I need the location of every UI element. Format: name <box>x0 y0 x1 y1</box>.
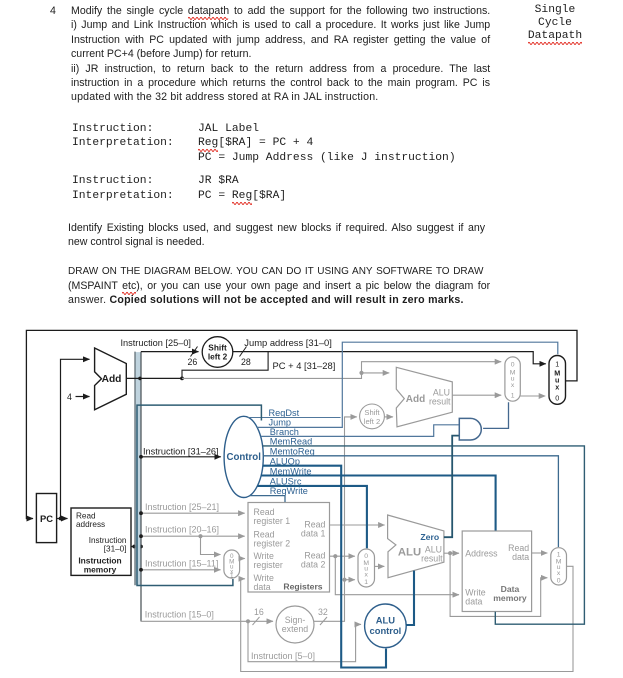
svg-text:Instruction [20–16]: Instruction [20–16] <box>145 525 219 535</box>
svg-text:Instruction [15–11]: Instruction [15–11] <box>145 559 218 569</box>
svg-text:0: 0 <box>511 362 515 369</box>
svg-text:x: x <box>557 570 561 577</box>
svg-text:4: 4 <box>67 392 72 402</box>
svg-text:0: 0 <box>555 393 559 402</box>
svg-text:1: 1 <box>364 579 368 586</box>
svg-text:left 2: left 2 <box>364 417 380 426</box>
svg-text:PC + 4 [31–28]: PC + 4 [31–28] <box>273 360 336 371</box>
svg-text:extend: extend <box>282 624 309 634</box>
svg-text:address: address <box>76 520 105 529</box>
svg-text:Address: Address <box>465 549 498 559</box>
svg-text:left 2: left 2 <box>208 352 228 362</box>
svg-text:Zero: Zero <box>420 532 439 542</box>
svg-text:Branch: Branch <box>270 427 299 437</box>
svg-text:result: result <box>429 397 451 407</box>
svg-text:register 2: register 2 <box>254 538 291 548</box>
svg-text:Instruction [25–0]: Instruction [25–0] <box>121 338 191 348</box>
svg-text:PC: PC <box>40 513 53 524</box>
svg-text:data: data <box>512 552 529 562</box>
svg-text:Instruction [31–26]: Instruction [31–26] <box>143 446 219 456</box>
svg-text:data 2: data 2 <box>301 559 326 569</box>
svg-text:28: 28 <box>241 357 251 367</box>
svg-text:Jump address [31–0]: Jump address [31–0] <box>244 337 332 348</box>
svg-text:32: 32 <box>318 607 328 617</box>
svg-text:26: 26 <box>188 357 198 367</box>
svg-text:ALU: ALU <box>398 546 421 558</box>
svg-text:1: 1 <box>511 392 515 399</box>
svg-text:Control: Control <box>226 452 260 463</box>
svg-text:data 1: data 1 <box>301 528 326 538</box>
svg-text:[31–0]: [31–0] <box>104 544 127 553</box>
svg-text:x: x <box>511 382 515 389</box>
svg-text:data: data <box>465 596 482 606</box>
svg-text:RegDst: RegDst <box>269 408 300 418</box>
svg-text:1: 1 <box>230 573 234 580</box>
svg-text:Add: Add <box>406 394 425 405</box>
svg-text:0: 0 <box>557 578 561 585</box>
svg-text:Instruction [25–21]: Instruction [25–21] <box>145 502 219 512</box>
svg-text:Jump: Jump <box>269 418 291 428</box>
svg-text:x: x <box>555 382 559 391</box>
svg-text:x: x <box>364 571 368 578</box>
svg-text:memory: memory <box>84 564 117 574</box>
svg-text:MemtoReg: MemtoReg <box>270 447 315 457</box>
svg-text:Add: Add <box>102 374 122 385</box>
svg-text:1: 1 <box>555 359 559 368</box>
svg-text:result: result <box>421 553 443 563</box>
svg-text:control: control <box>370 625 402 636</box>
svg-text:data: data <box>254 582 271 592</box>
svg-text:16: 16 <box>254 607 264 617</box>
svg-text:register: register <box>254 560 283 570</box>
svg-text:Instruction [15–0]: Instruction [15–0] <box>145 609 214 619</box>
svg-text:RegWrite: RegWrite <box>270 486 308 496</box>
svg-text:memory: memory <box>493 593 527 603</box>
svg-text:ALUSrc: ALUSrc <box>270 476 302 486</box>
svg-text:ALU: ALU <box>376 614 395 625</box>
svg-text:register 1: register 1 <box>254 516 291 526</box>
svg-text:Instruction [5–0]: Instruction [5–0] <box>251 651 315 661</box>
svg-text:Registers: Registers <box>283 582 322 592</box>
